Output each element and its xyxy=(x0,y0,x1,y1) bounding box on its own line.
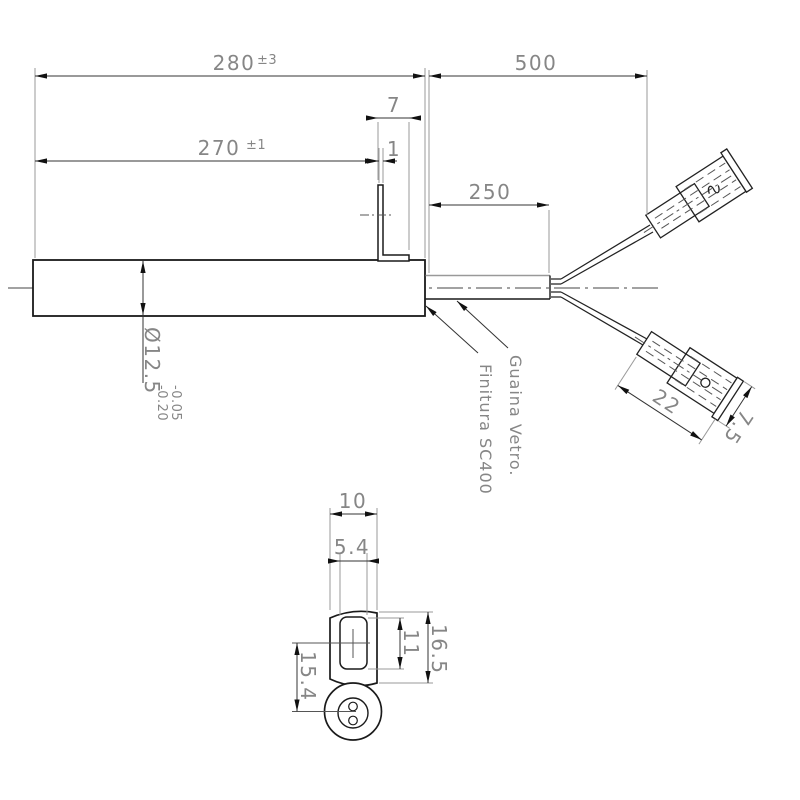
sheath-label: Guaina Vetro. xyxy=(506,355,525,476)
leader-finish: Finitura SC400 xyxy=(426,306,495,495)
dim-16-5-text: 16.5 xyxy=(427,624,451,675)
heater-body-outline xyxy=(33,260,425,316)
pin-hole-top xyxy=(349,702,358,711)
dim-250-text: 250 xyxy=(469,180,512,204)
dim-7-text: 7 xyxy=(387,93,401,117)
dim-15-4: 15.4 xyxy=(296,643,320,712)
dim-270-text: 270 xyxy=(198,136,241,160)
sleeve-outline xyxy=(426,276,551,300)
wire-upper-2 xyxy=(561,232,653,284)
dim-500-text: 500 xyxy=(515,51,558,75)
flange-bracket xyxy=(378,185,409,261)
wires xyxy=(551,225,653,345)
dim-15-4-text: 15.4 xyxy=(296,651,320,702)
main-view: 22 7.5 280 ±3 500 270 ±1 xyxy=(8,51,771,495)
dim-diameter-tol-lower: -0.20 xyxy=(154,385,169,421)
wire-lower-1 xyxy=(561,292,647,339)
dim-22-text: 22 xyxy=(648,384,685,420)
dim-1-text: 1 xyxy=(387,137,401,161)
dim-500: 500 xyxy=(429,51,647,273)
dim-7-5-text: 7.5 xyxy=(718,406,758,450)
connector-upper xyxy=(630,149,752,251)
end-detail-view: 10 5.4 15.4 11 16.5 xyxy=(292,489,451,740)
connector-lower: 22 7.5 xyxy=(605,319,771,464)
dim-5-4-text: 5.4 xyxy=(334,535,370,559)
dim-11-text: 11 xyxy=(399,629,423,657)
drawing-canvas: 22 7.5 280 ±3 500 270 ±1 xyxy=(0,0,800,800)
technical-drawing: 22 7.5 280 ±3 500 270 ±1 xyxy=(0,0,800,800)
dim-5-4: 5.4 xyxy=(328,535,379,615)
wire-lower-2 xyxy=(561,297,643,345)
dim-270-tol: ±1 xyxy=(246,138,266,153)
dim-7: 7 xyxy=(366,93,421,250)
dim-270: 270 ±1 xyxy=(35,136,377,161)
dim-280-text: 280 xyxy=(213,51,256,75)
wire-upper-1 xyxy=(561,225,650,279)
terminal-hole xyxy=(699,376,711,388)
finish-label: Finitura SC400 xyxy=(476,364,495,495)
dim-diameter-tol-upper: -0.05 xyxy=(168,385,183,421)
dim-250: 250 xyxy=(429,180,549,273)
pin-hole-bottom xyxy=(349,716,358,725)
dim-10-text: 10 xyxy=(339,489,367,513)
dim-1: 1 xyxy=(369,137,401,183)
dim-280-tol: ±3 xyxy=(257,53,277,68)
